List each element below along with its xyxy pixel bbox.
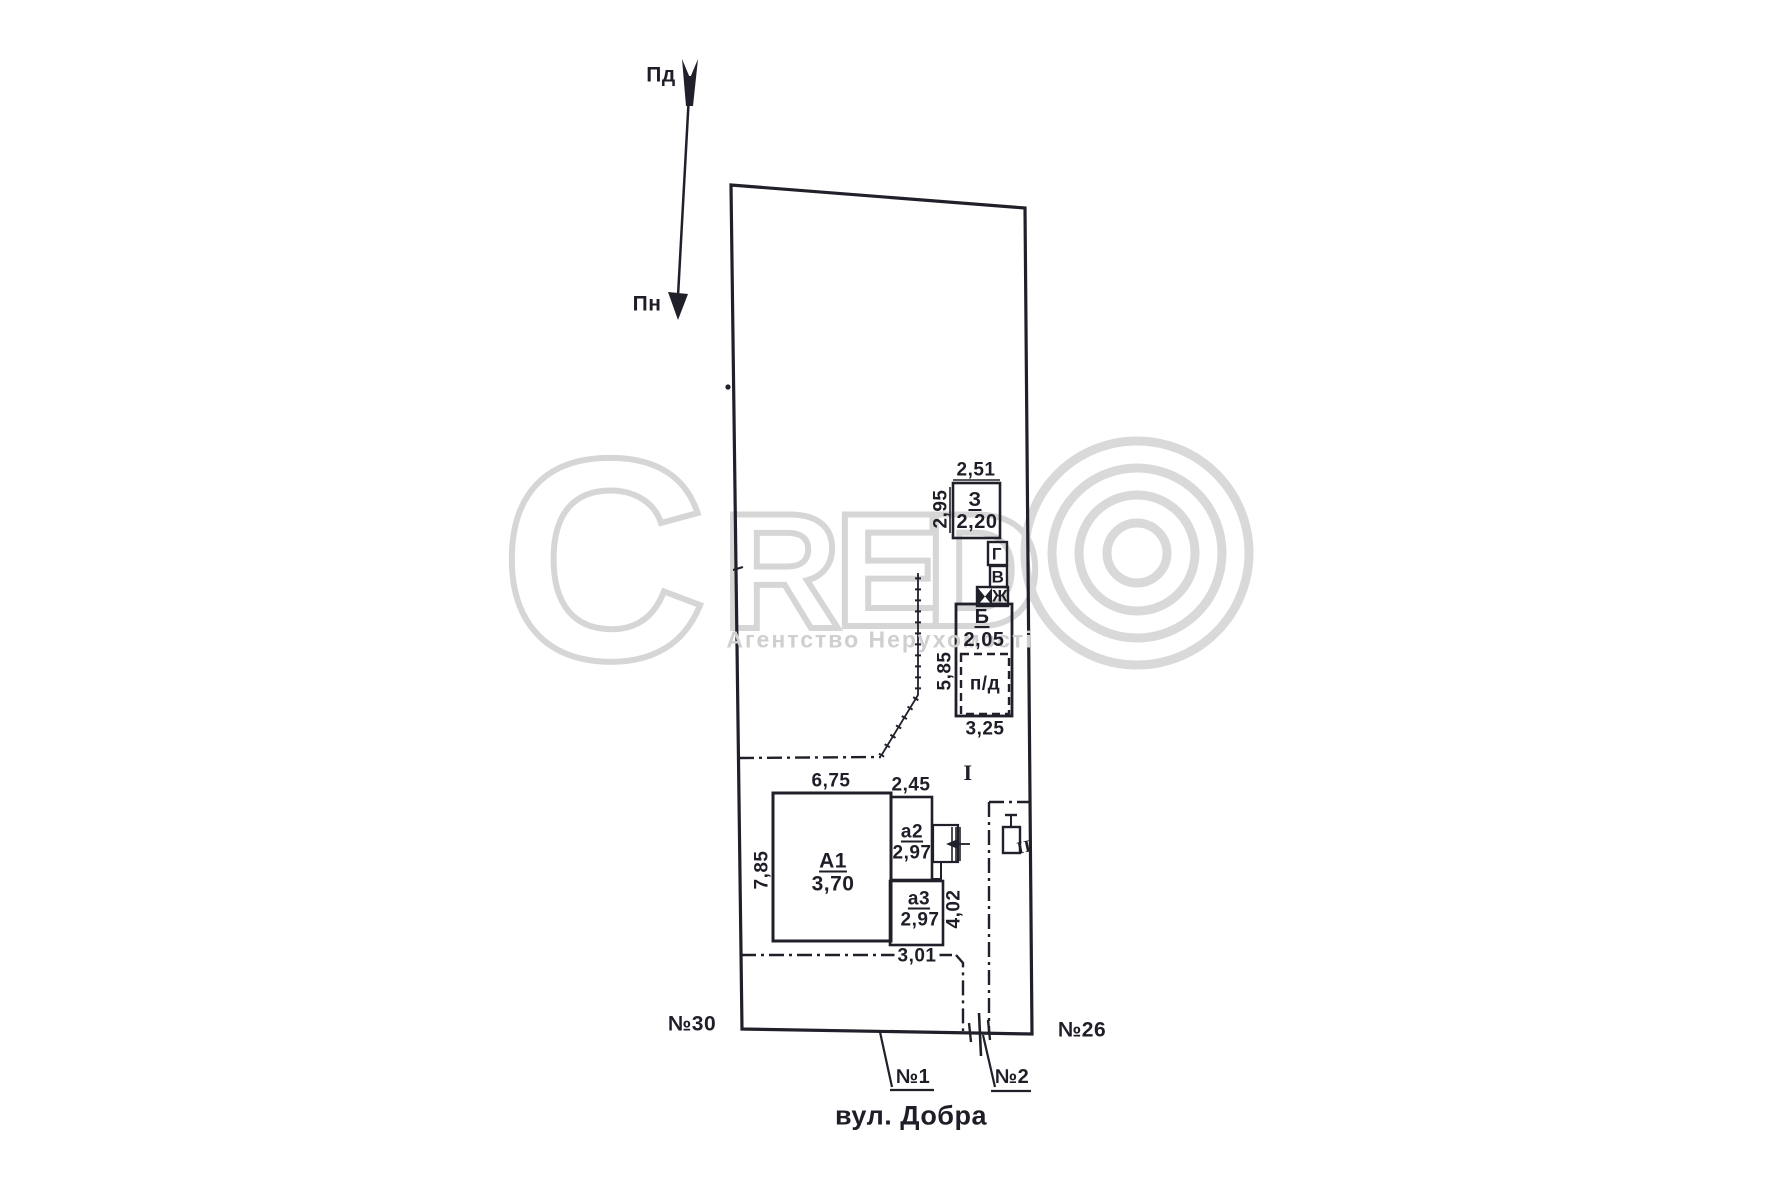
compass-north-label: Пн — [633, 294, 662, 315]
building-z-label: З — [968, 490, 981, 510]
zone-yard-numeral: I — [963, 762, 972, 784]
site-plan-scan: C R E D — [0, 0, 1772, 1181]
dim-a3-bottom: 3,01 — [895, 947, 940, 966]
building-pd-label: п/д — [970, 675, 1000, 694]
compass-arrow-shaft — [678, 76, 690, 296]
gate2-tick — [969, 1023, 971, 1042]
building-a3-label: а3 — [908, 890, 930, 909]
yard-line-corner — [956, 955, 963, 1031]
building-g-label: Г — [992, 546, 1002, 563]
building-a2-label: а2 — [901, 823, 923, 842]
dim-b-left: 5,85 — [936, 652, 955, 691]
gate1-label: №1 — [896, 1067, 930, 1087]
site-plan-drawing: C R E D — [0, 0, 1772, 1181]
gate2-label: №2 — [995, 1067, 1029, 1087]
gate2-tick — [988, 1020, 990, 1040]
dim-z-top: 2,51 — [957, 461, 996, 480]
dim-z-left: 2,95 — [932, 490, 951, 529]
building-a2-step — [932, 862, 941, 879]
dim-a2-top: 2,45 — [892, 776, 931, 795]
building-b-label: Б — [975, 607, 990, 627]
building-z-height: 2,20 — [957, 512, 998, 532]
gate2-post — [979, 1013, 981, 1056]
dim-a3-right: 4,02 — [945, 890, 964, 929]
watermark-letter-c: C — [500, 399, 708, 721]
building-a1-height: 3,70 — [812, 874, 855, 895]
building-zh-label: Ж — [992, 588, 1008, 605]
building-v-label: В — [992, 569, 1005, 586]
building-a2-height: 2,97 — [893, 844, 932, 863]
neighbor-right-label: №26 — [1058, 1020, 1106, 1041]
fence-line-horizontal — [739, 757, 881, 758]
compass-south-label: Пд — [646, 65, 675, 86]
building-a3-height: 2,97 — [901, 911, 940, 930]
dim-b-bottom: 3,25 — [966, 720, 1005, 739]
dim-a1-top: 6,75 — [812, 772, 851, 791]
credo-watermark-rings — [1025, 441, 1249, 665]
neighbor-left-label: №30 — [668, 1014, 716, 1035]
building-b-height: 2,05 — [964, 630, 1005, 650]
boundary-point-mark — [725, 384, 730, 389]
compass-arrow-head — [668, 292, 688, 320]
dim-a1-left: 7,85 — [753, 851, 772, 890]
street-name: вул. Добра — [835, 1103, 987, 1130]
building-a1-label: А1 — [819, 851, 847, 872]
compass-arrow-fletching — [682, 59, 698, 106]
